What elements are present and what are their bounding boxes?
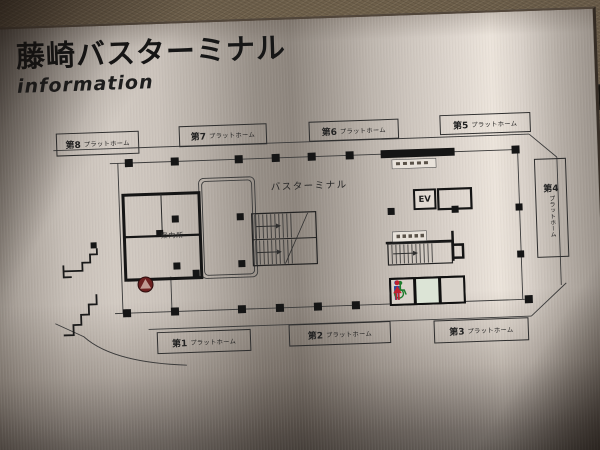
terminal-area-label: バスターミナル bbox=[270, 176, 347, 193]
platform-6-label: 第6 プラットホーム bbox=[308, 119, 399, 142]
platform-1-label: 第1 プラットホーム bbox=[157, 329, 252, 354]
signboard-photo: 藤崎バスターミナル information bbox=[0, 0, 600, 450]
stairs-icon bbox=[252, 212, 318, 266]
terminal-floor-map: 第8 プラットホーム 第7 プラットホーム 第6 プラットホーム 第5 プラット… bbox=[46, 100, 579, 382]
platform-4-label: 第4 プラットホーム bbox=[534, 158, 569, 258]
info-office-label: 案内所 bbox=[148, 229, 196, 241]
you-are-here-marker bbox=[138, 277, 154, 293]
platform-5-label: 第5 プラットホーム bbox=[439, 112, 531, 135]
platform-2-label: 第2 プラットホーム bbox=[289, 321, 392, 347]
platform-7-label: 第7 プラットホーム bbox=[179, 123, 268, 147]
pillar bbox=[91, 242, 97, 248]
metal-sign-plate: 藤崎バスターミナル information bbox=[0, 7, 600, 450]
outdoor-stairs bbox=[61, 248, 100, 335]
platform-3-label: 第3 プラットホーム bbox=[433, 317, 529, 343]
womens-restroom-icon bbox=[441, 277, 464, 302]
sign-header: 藤崎バスターミナル information bbox=[16, 33, 288, 98]
accessible-restroom-icon bbox=[416, 278, 439, 303]
platform-8-label: 第8 プラットホーム bbox=[56, 131, 140, 157]
restroom-block bbox=[389, 275, 466, 306]
elevator-label: EV bbox=[413, 188, 437, 210]
